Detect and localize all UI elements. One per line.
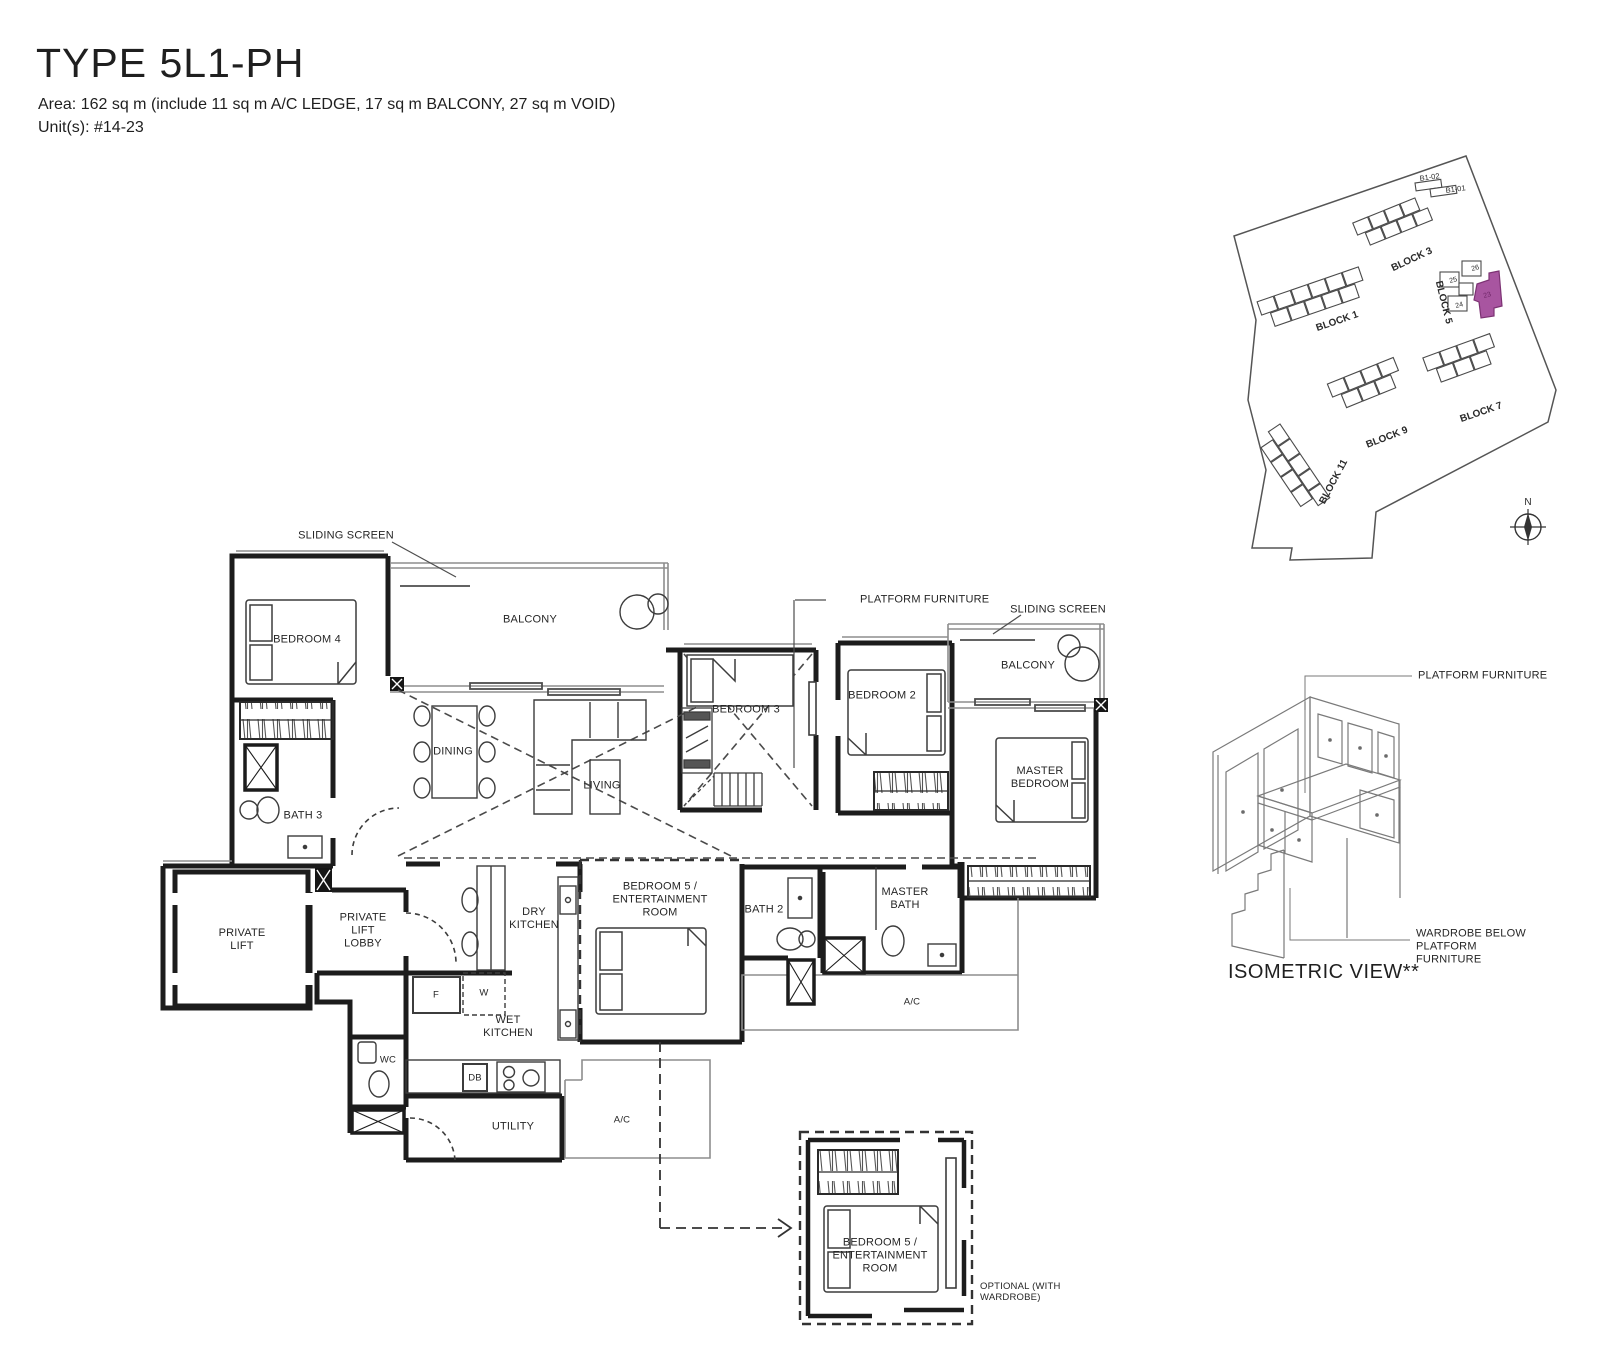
area-text: Area: 162 sq m (include 11 sq m A/C LEDG… xyxy=(38,96,615,114)
detail-room-bedroom5: BEDROOM 5 / ENTERTAINMENT ROOM xyxy=(822,1237,938,1276)
label-washer: W xyxy=(479,987,488,998)
room-master-bedroom: MASTER BEDROOM xyxy=(1008,765,1072,791)
annotation-sliding-screen-right: SLIDING SCREEN xyxy=(1010,604,1106,617)
isometric-drawing xyxy=(1213,676,1412,958)
stairs xyxy=(682,708,762,806)
room-wet-kitchen: WET KITCHEN xyxy=(478,1014,538,1040)
site-label-block3: BLOCK 3 xyxy=(1390,245,1435,274)
isometric-caption: ISOMETRIC VIEW** xyxy=(1228,961,1419,985)
units-text: Unit(s): #14-23 xyxy=(38,119,144,137)
site-block9-buildings xyxy=(1327,357,1404,410)
room-dry-kitchen: DRY KITCHEN xyxy=(504,906,564,932)
north-compass-icon: N xyxy=(1510,497,1546,545)
annotation-optional: OPTIONAL (WITH WARDROBE) xyxy=(980,1281,1080,1303)
site-label-b1-01: B1-01 xyxy=(1445,183,1466,195)
site-plan: B1-02 B1-01 BLOCK 3 BLOCK 1 BLOCK 5 BLOC… xyxy=(1234,156,1556,560)
room-living: LIVING xyxy=(583,780,620,793)
room-bedroom3: BEDROOM 3 xyxy=(712,704,780,717)
room-ac-side: A/C xyxy=(904,996,920,1007)
site-label-block7: BLOCK 7 xyxy=(1459,400,1504,425)
page-title: TYPE 5L1-PH xyxy=(36,40,305,87)
room-ac-bottom: A/C xyxy=(614,1114,630,1125)
room-bedroom4: BEDROOM 4 xyxy=(273,634,341,647)
site-label-block1: BLOCK 1 xyxy=(1315,309,1360,334)
label-fridge: F xyxy=(433,989,439,1000)
room-utility: UTILITY xyxy=(492,1121,534,1134)
room-master-bath: MASTER BATH xyxy=(877,886,933,912)
site-block3-buildings xyxy=(1353,195,1433,248)
room-bedroom2: BEDROOM 2 xyxy=(848,690,916,703)
room-private-lift: PRIVATE LIFT xyxy=(211,927,273,953)
room-wc: WC xyxy=(380,1054,396,1065)
compass-n-label: N xyxy=(1524,497,1531,508)
iso-label-wardrobe: WARDROBE BELOW PLATFORM FURNITURE xyxy=(1416,928,1541,967)
iso-label-platform: PLATFORM FURNITURE xyxy=(1418,670,1547,683)
annotation-sliding-screen-left: SLIDING SCREEN xyxy=(298,530,394,543)
room-bath2: BATH 2 xyxy=(739,904,789,917)
room-bath3: BATH 3 xyxy=(284,810,323,823)
room-dining: DINING xyxy=(433,746,473,759)
plan-linework: B1-02 B1-01 BLOCK 3 BLOCK 1 BLOCK 5 BLOC… xyxy=(0,0,1600,1359)
room-bedroom5: BEDROOM 5 / ENTERTAINMENT ROOM xyxy=(605,881,715,920)
site-block7-buildings xyxy=(1423,334,1500,386)
site-label-block11: BLOCK 11 xyxy=(1317,457,1350,506)
room-balcony-left: BALCONY xyxy=(503,614,557,627)
site-label-block9: BLOCK 9 xyxy=(1365,425,1410,451)
room-balcony-right: BALCONY xyxy=(1001,660,1055,673)
label-db: DB xyxy=(468,1072,482,1083)
kitchen-fittings xyxy=(406,866,578,1093)
room-private-lift-lobby: PRIVATE LIFT LOBBY xyxy=(335,912,391,951)
annotation-platform-furniture: PLATFORM FURNITURE xyxy=(860,594,989,607)
floorplan-page: B1-02 B1-01 BLOCK 3 BLOCK 1 BLOCK 5 BLOC… xyxy=(0,0,1600,1359)
